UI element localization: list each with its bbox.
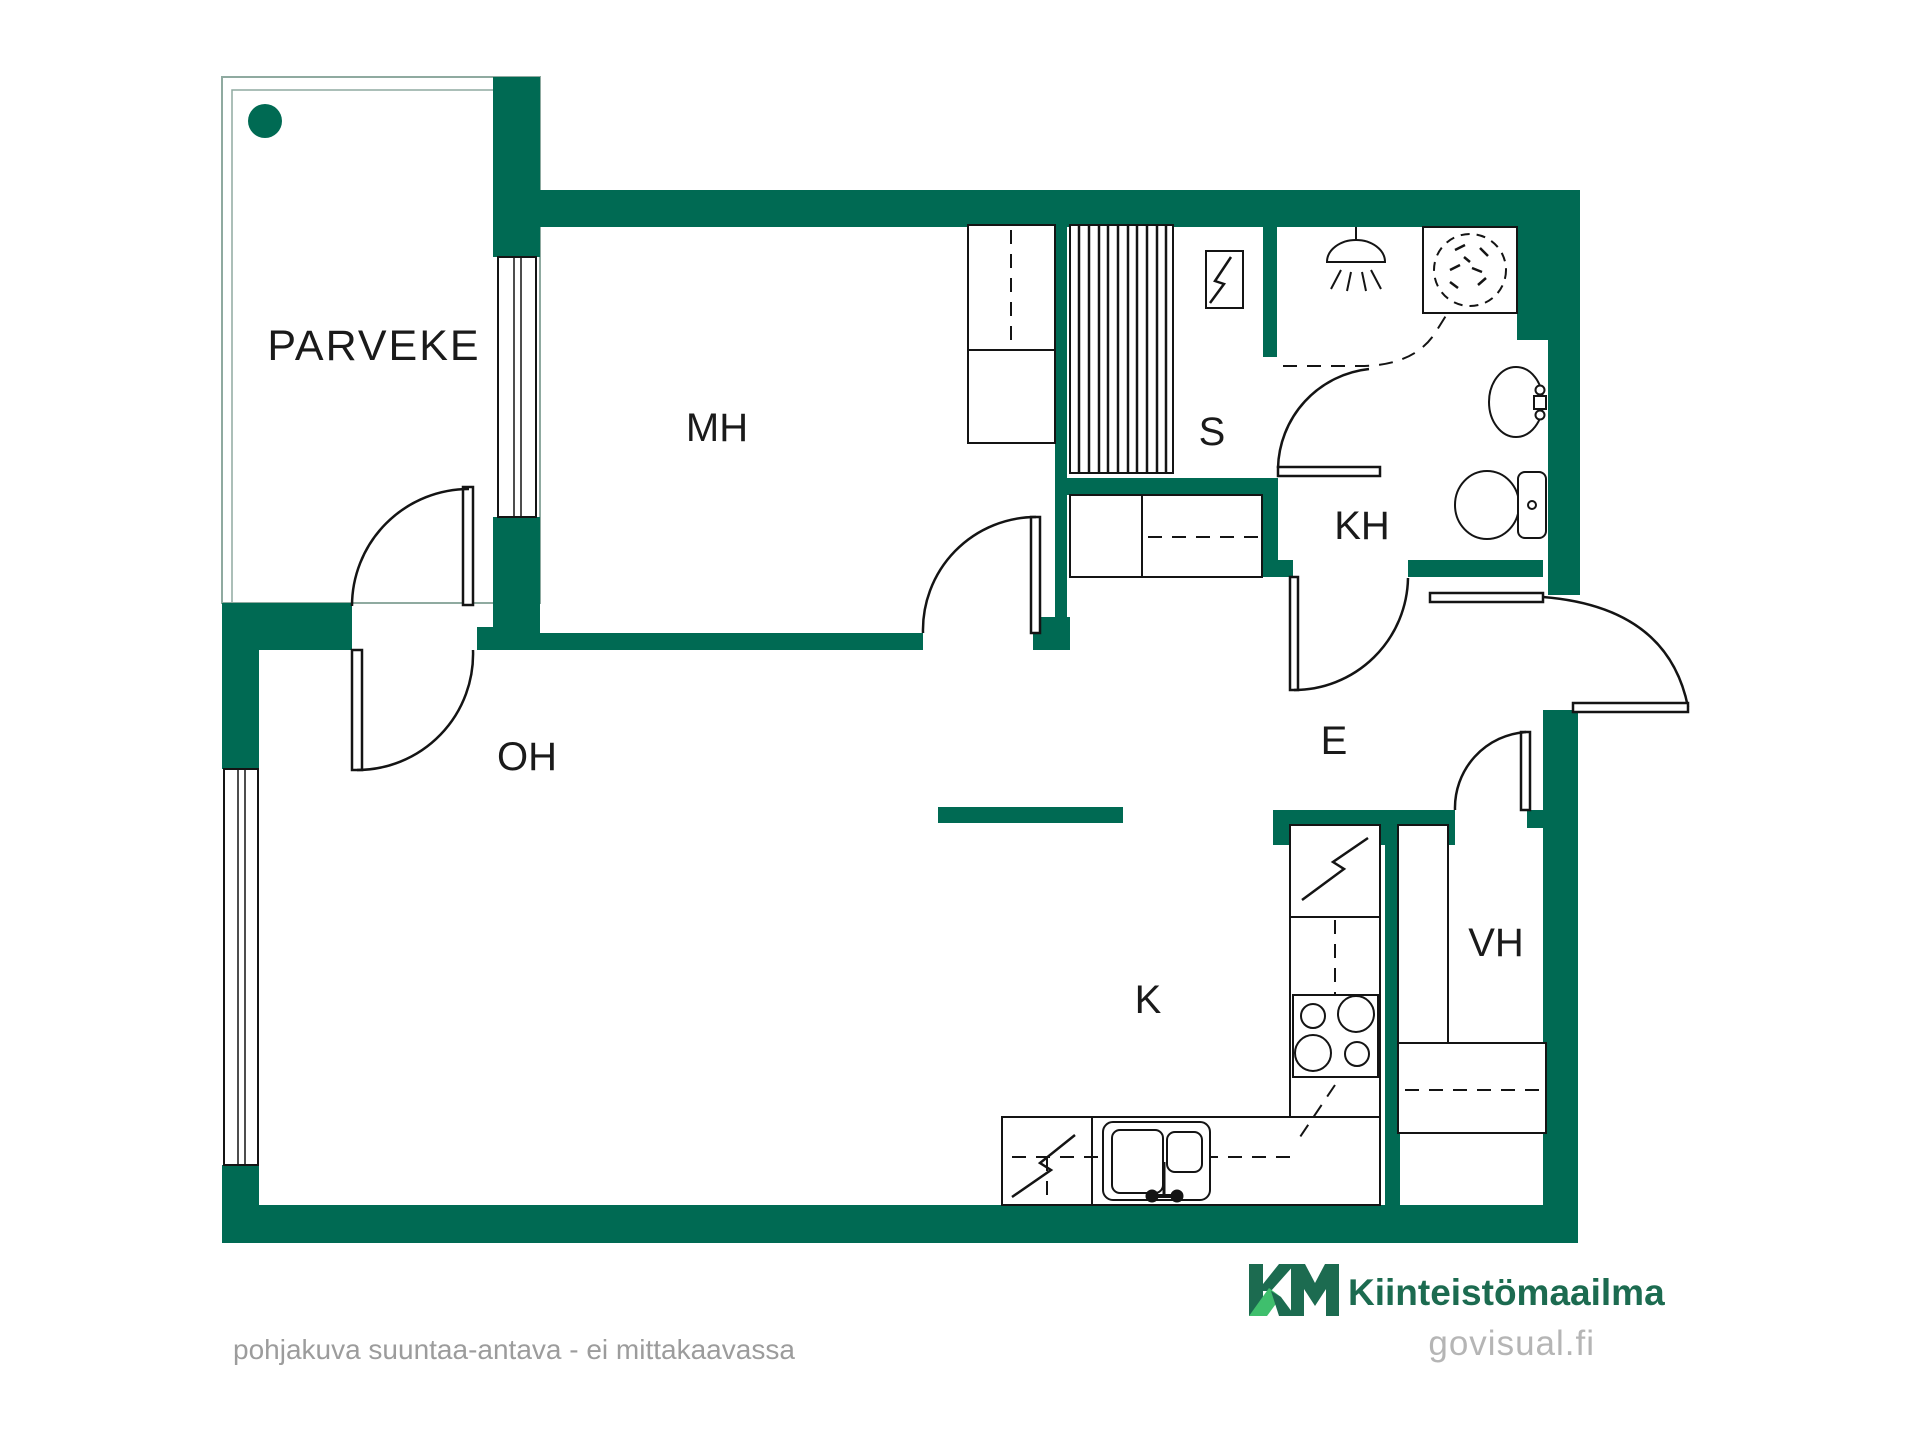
wall-balcony-south — [222, 603, 352, 650]
mh-closet — [968, 225, 1055, 443]
shower-head-icon — [1327, 227, 1385, 291]
wall-right-upper — [1548, 340, 1580, 595]
wall-right-thick — [1517, 190, 1580, 340]
room-label-vh: VH — [1468, 921, 1524, 965]
wall-sauna-east-upper — [1263, 222, 1277, 357]
wall-e-south-east — [1527, 810, 1543, 828]
window-oh-left — [224, 769, 258, 1165]
disclaimer-text: pohjakuva suuntaa-antava - ei mittakaava… — [233, 1334, 795, 1366]
bathroom-cabinet — [1070, 495, 1262, 577]
room-label-e: E — [1321, 719, 1348, 763]
room-label-kh: KH — [1334, 504, 1390, 548]
entrance-door — [1430, 593, 1688, 712]
kitchen-sink-icon — [1103, 1122, 1210, 1202]
wall-mh-south — [540, 633, 923, 650]
washbasin-icon — [1489, 367, 1546, 437]
sauna-door — [1278, 369, 1380, 476]
wall-bottom — [222, 1205, 1578, 1243]
wall-right-lower — [1543, 710, 1578, 1243]
wall-left-upper — [222, 648, 259, 769]
sauna-stove — [1206, 251, 1243, 308]
floorplan-drawing: PARVEKE MH S KH E OH K VH — [0, 0, 1920, 1440]
room-label-oh: OH — [497, 735, 557, 779]
wall-balcony-right-upper — [493, 77, 540, 257]
km-logo-m — [1291, 1264, 1339, 1316]
kh-door — [1290, 577, 1408, 690]
wall-kh-south-a — [1273, 560, 1293, 577]
wall-kh-south-b — [1408, 560, 1543, 577]
room-label-k: K — [1135, 978, 1162, 1022]
wall-left-lower — [222, 1165, 259, 1205]
brand-name: Kiinteistömaailma — [1348, 1272, 1665, 1314]
wall-balcony-door-jamb — [477, 627, 540, 650]
balcony-corner-dot — [248, 104, 282, 138]
vh-shelf — [1398, 1043, 1546, 1133]
vh-door — [1455, 732, 1530, 810]
watermark-text: govisual.fi — [1330, 1324, 1595, 1364]
km-logo-icon — [1243, 1260, 1343, 1320]
window-mh-balcony — [498, 257, 536, 517]
vh-wardrobe — [1398, 825, 1448, 1043]
wall-sauna-west — [1055, 222, 1067, 650]
floorplan-page: PARVEKE MH S KH E OH K VH pohjakuva suun… — [0, 0, 1920, 1440]
kitchen-fixtures — [1002, 825, 1380, 1205]
room-label-s: S — [1199, 410, 1226, 454]
washing-machine-icon — [1423, 227, 1517, 313]
mh-door — [923, 517, 1040, 633]
wall-top — [540, 190, 1580, 227]
room-label-mh: MH — [686, 406, 748, 450]
cooktop-icon — [1293, 995, 1378, 1077]
wall-kitchen-peninsula — [938, 807, 1123, 823]
room-label-parveke: PARVEKE — [267, 322, 480, 370]
wall-sauna-south — [1055, 478, 1277, 495]
shower-curtain-dashed — [1283, 314, 1447, 366]
vh-fixtures — [1398, 825, 1546, 1133]
toilet-icon — [1455, 471, 1546, 539]
